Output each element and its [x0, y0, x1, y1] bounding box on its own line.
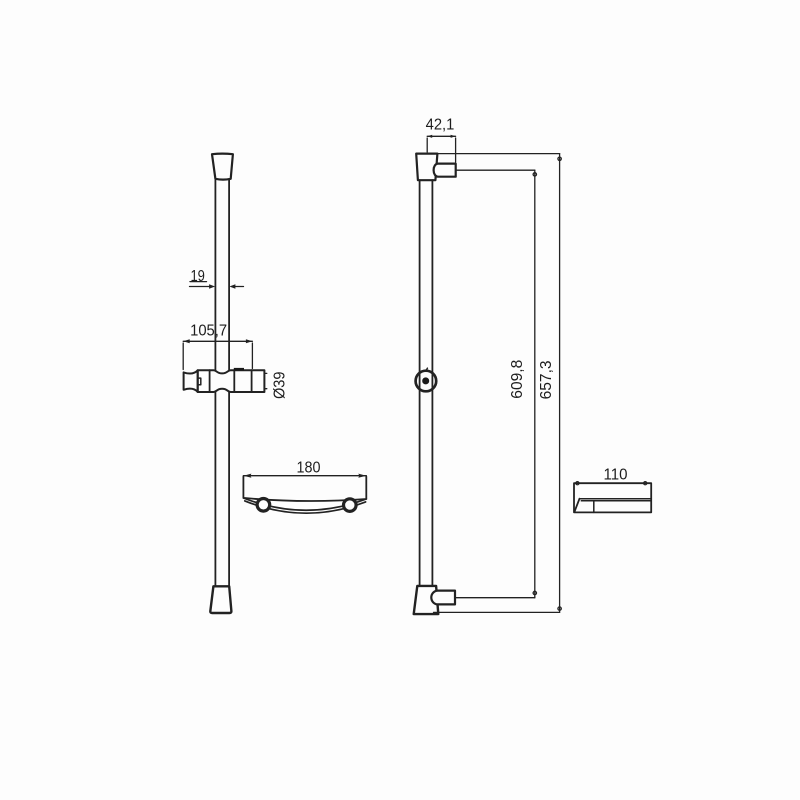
svg-text:110: 110: [604, 466, 628, 483]
svg-text:180: 180: [297, 459, 321, 476]
svg-text:657,3: 657,3: [538, 360, 555, 399]
svg-text:Ø39: Ø39: [271, 372, 288, 400]
svg-text:42,1: 42,1: [426, 116, 455, 133]
svg-text:19: 19: [190, 268, 205, 285]
svg-text:609,8: 609,8: [509, 360, 526, 399]
svg-text:105,7: 105,7: [190, 323, 227, 340]
